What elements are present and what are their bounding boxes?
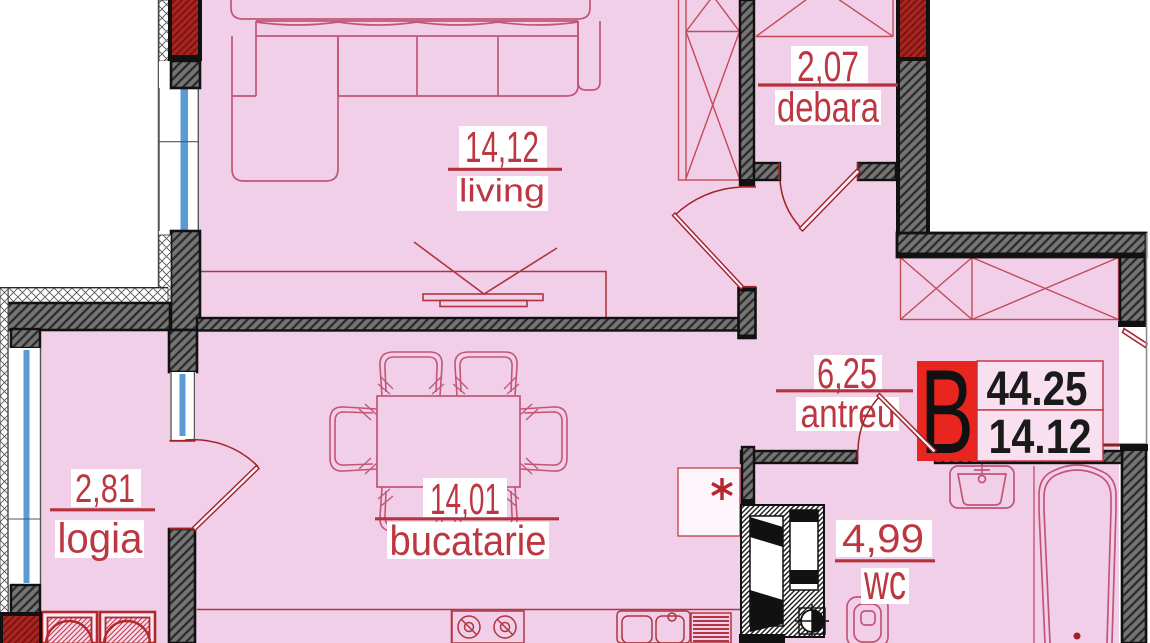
svg-text:44.25: 44.25 bbox=[987, 363, 1088, 416]
svg-text:B: B bbox=[920, 345, 974, 479]
svg-text:bucatarie: bucatarie bbox=[390, 517, 547, 564]
svg-text:debara: debara bbox=[777, 84, 879, 131]
svg-text:logia: logia bbox=[58, 515, 144, 562]
svg-text:wc: wc bbox=[863, 554, 906, 610]
svg-text:living: living bbox=[459, 173, 545, 209]
svg-text:14,12: 14,12 bbox=[465, 123, 539, 172]
svg-text:2,81: 2,81 bbox=[75, 467, 135, 511]
svg-text:14.12: 14.12 bbox=[989, 411, 1092, 464]
